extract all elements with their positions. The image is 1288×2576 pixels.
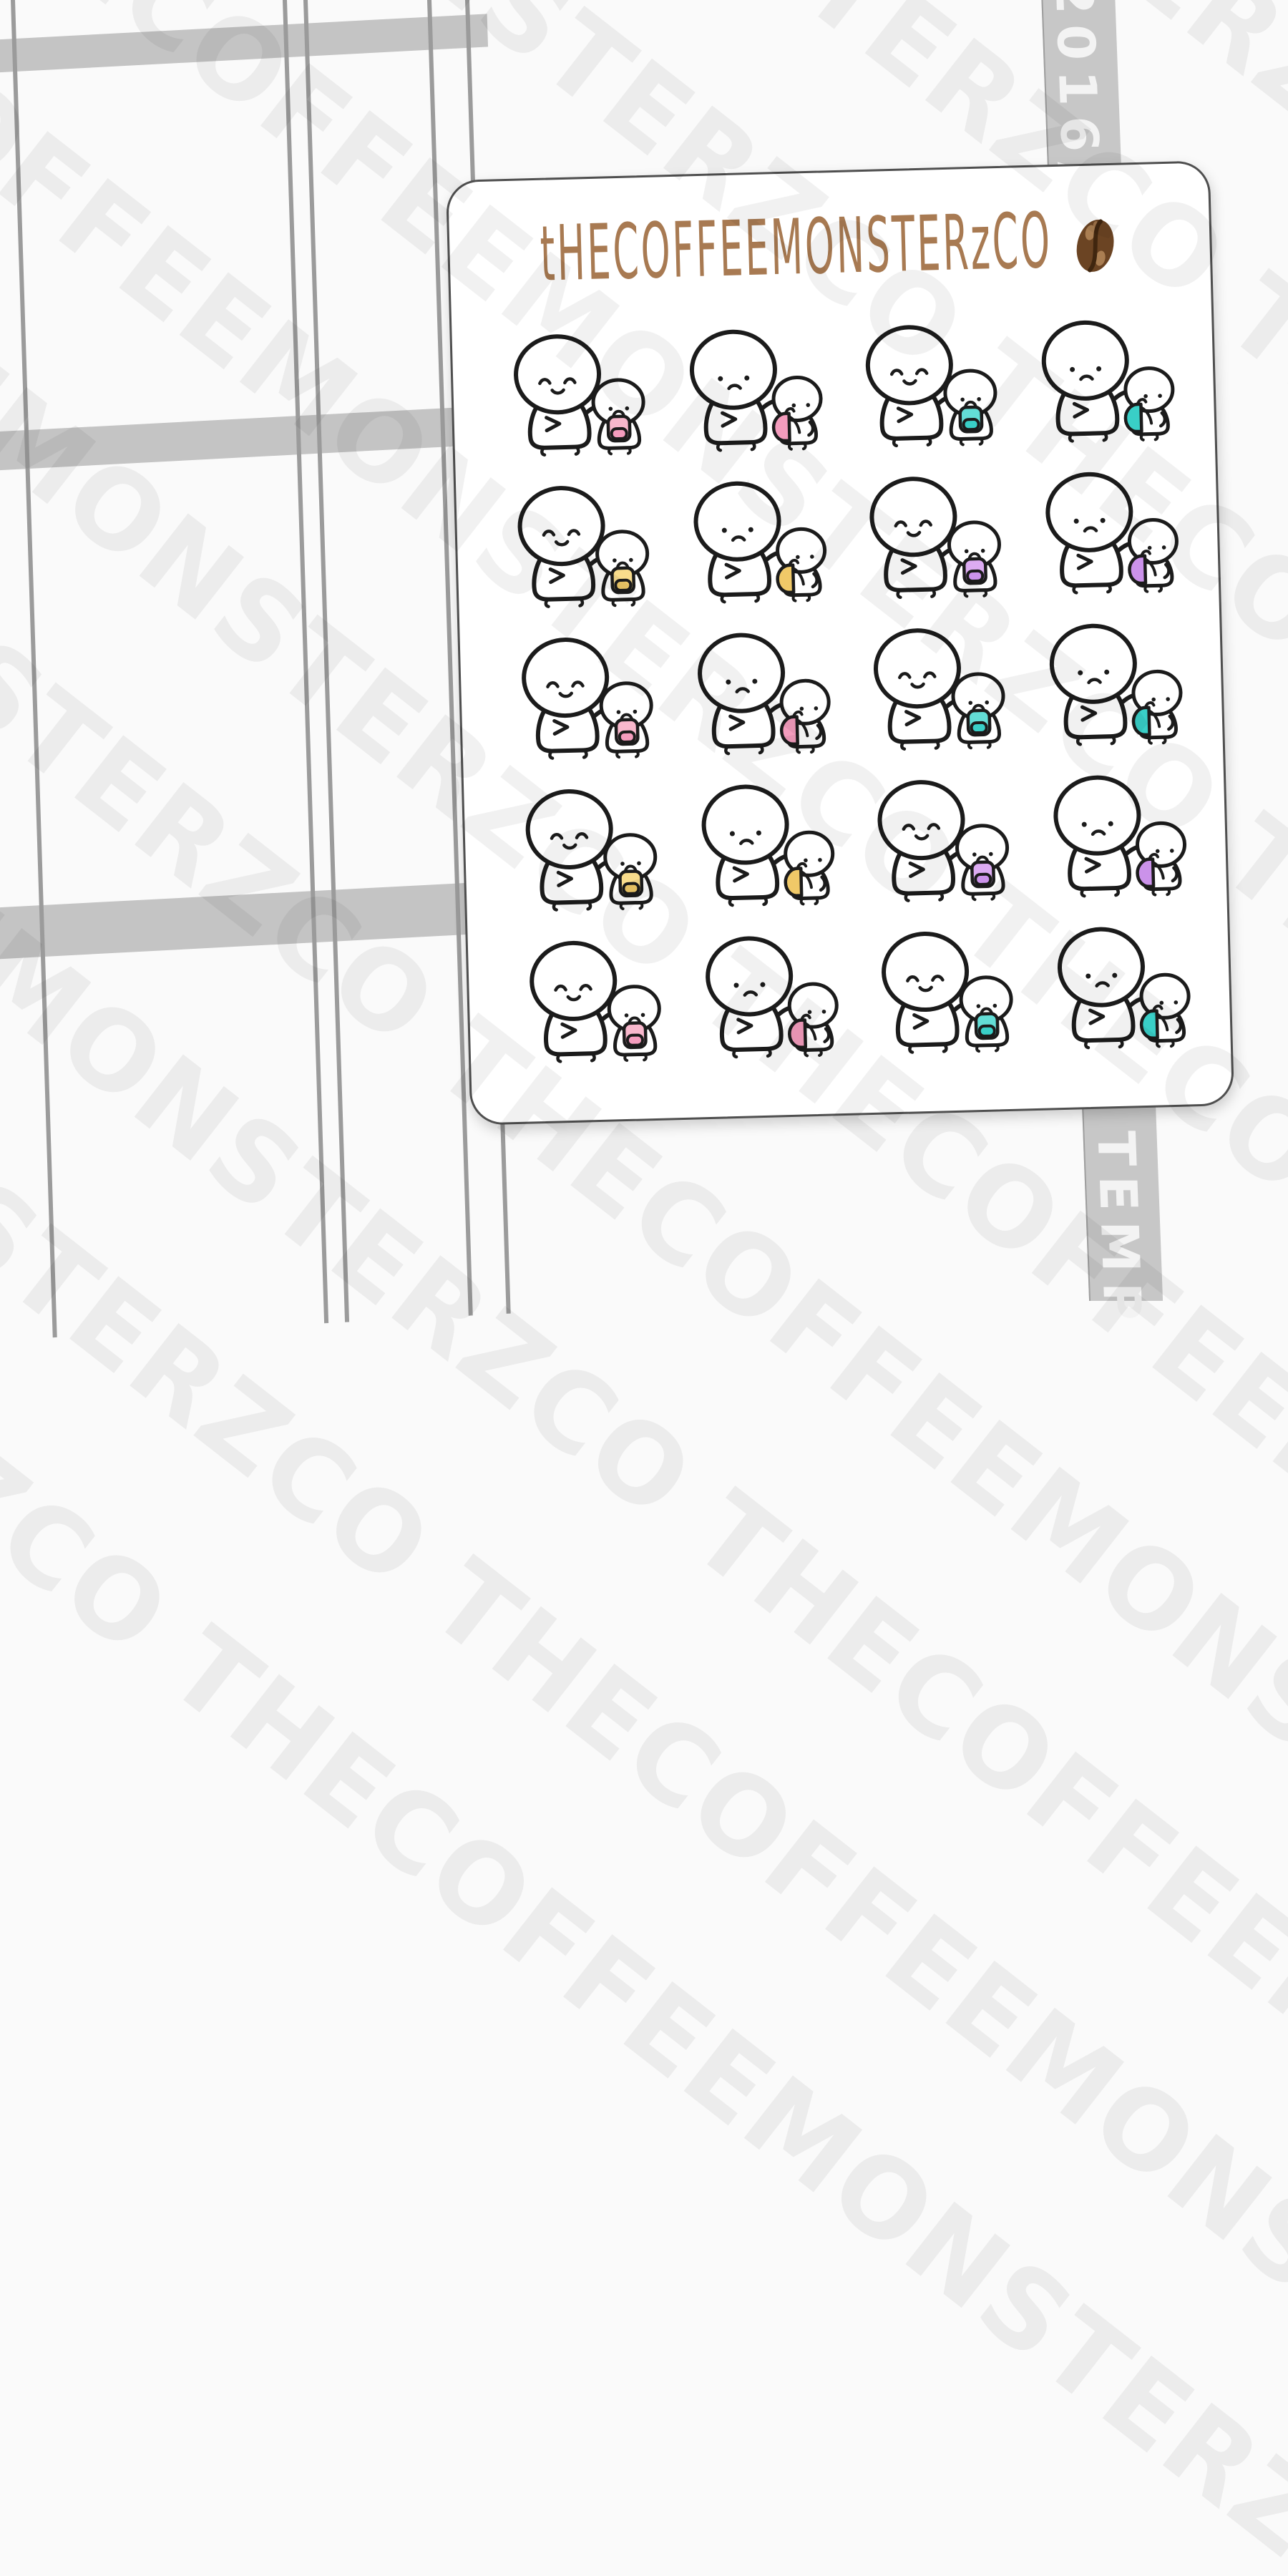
sticker-group-pink-side bbox=[698, 931, 849, 1067]
sticker-group-teal-side bbox=[1050, 922, 1200, 1058]
sticker-group-yellow-side bbox=[694, 779, 844, 915]
child-character bbox=[1124, 368, 1174, 441]
child-character bbox=[788, 983, 838, 1056]
sticker-group-pink-side bbox=[682, 324, 832, 460]
planner-header-band bbox=[0, 14, 488, 74]
coffee-bean-icon bbox=[1070, 210, 1121, 282]
child-character bbox=[1132, 671, 1182, 744]
big-character bbox=[1051, 625, 1144, 745]
sticker-group-yellow-front bbox=[510, 481, 660, 617]
sticker-row bbox=[514, 618, 1193, 769]
child-character bbox=[597, 531, 649, 606]
sticker-group-teal-front bbox=[866, 623, 1016, 759]
sticker-sheet: tHECOFFEEMONSTERzCO bbox=[446, 160, 1234, 1126]
sticker-group-pink-side bbox=[691, 628, 841, 763]
big-character bbox=[691, 331, 784, 451]
child-character bbox=[1140, 974, 1190, 1047]
sticker-group-yellow-side bbox=[686, 476, 836, 612]
big-character bbox=[699, 634, 792, 754]
brand-logo: tHECOFFEEMONSTERzCO bbox=[449, 191, 1211, 304]
big-character bbox=[707, 937, 800, 1058]
child-character bbox=[952, 673, 1005, 748]
brand-logo-text: tHECOFFEEMONSTERzCO bbox=[540, 198, 1053, 300]
sticker-group-purple-side bbox=[1038, 467, 1189, 602]
child-character bbox=[772, 377, 822, 450]
planner-column-line bbox=[302, 0, 349, 1322]
sticker-group-pink-front bbox=[522, 935, 673, 1071]
child-character bbox=[1136, 823, 1186, 896]
child-character bbox=[780, 680, 830, 753]
child-character bbox=[957, 825, 1009, 900]
sticker-group-purple-side bbox=[1046, 770, 1196, 906]
sticker-group-teal-side bbox=[1042, 618, 1192, 754]
child-character bbox=[960, 977, 1013, 1052]
big-character bbox=[1043, 321, 1136, 441]
child-character bbox=[949, 522, 1001, 597]
sticker-row bbox=[518, 770, 1196, 920]
big-character bbox=[1047, 473, 1140, 593]
child-character bbox=[945, 370, 997, 445]
sticker-group-teal-front bbox=[858, 320, 1008, 456]
sticker-group-teal-side bbox=[1034, 315, 1184, 451]
big-character bbox=[695, 482, 788, 602]
child-character bbox=[1128, 519, 1179, 592]
sticker-group-yellow-front bbox=[518, 784, 668, 919]
child-character bbox=[608, 986, 660, 1061]
big-character bbox=[1055, 776, 1148, 897]
big-character bbox=[1059, 928, 1152, 1048]
sticker-group-purple-front bbox=[870, 775, 1020, 911]
ribbon-template-text: TEMP bbox=[1085, 1131, 1153, 1330]
sticker-row bbox=[506, 315, 1184, 465]
big-character bbox=[703, 786, 796, 906]
product-image: { "watermark": { "text": "THECOFFEEMONST… bbox=[0, 0, 1288, 1288]
child-character bbox=[605, 834, 657, 909]
planner-header-band bbox=[0, 880, 516, 960]
sticker-group-pink-front bbox=[514, 633, 665, 769]
child-character bbox=[600, 683, 653, 758]
sticker-row bbox=[522, 922, 1201, 1072]
child-character bbox=[592, 379, 645, 454]
sticker-group-pink-front bbox=[506, 329, 656, 465]
planner-column-line bbox=[281, 0, 328, 1323]
child-character bbox=[776, 529, 826, 602]
sticker-group-teal-front bbox=[874, 927, 1025, 1063]
planner-column-line bbox=[10, 0, 57, 1337]
planner-header-band bbox=[0, 405, 500, 472]
sticker-row bbox=[510, 467, 1189, 617]
sticker-group-purple-front bbox=[862, 472, 1013, 608]
child-character bbox=[784, 831, 834, 904]
